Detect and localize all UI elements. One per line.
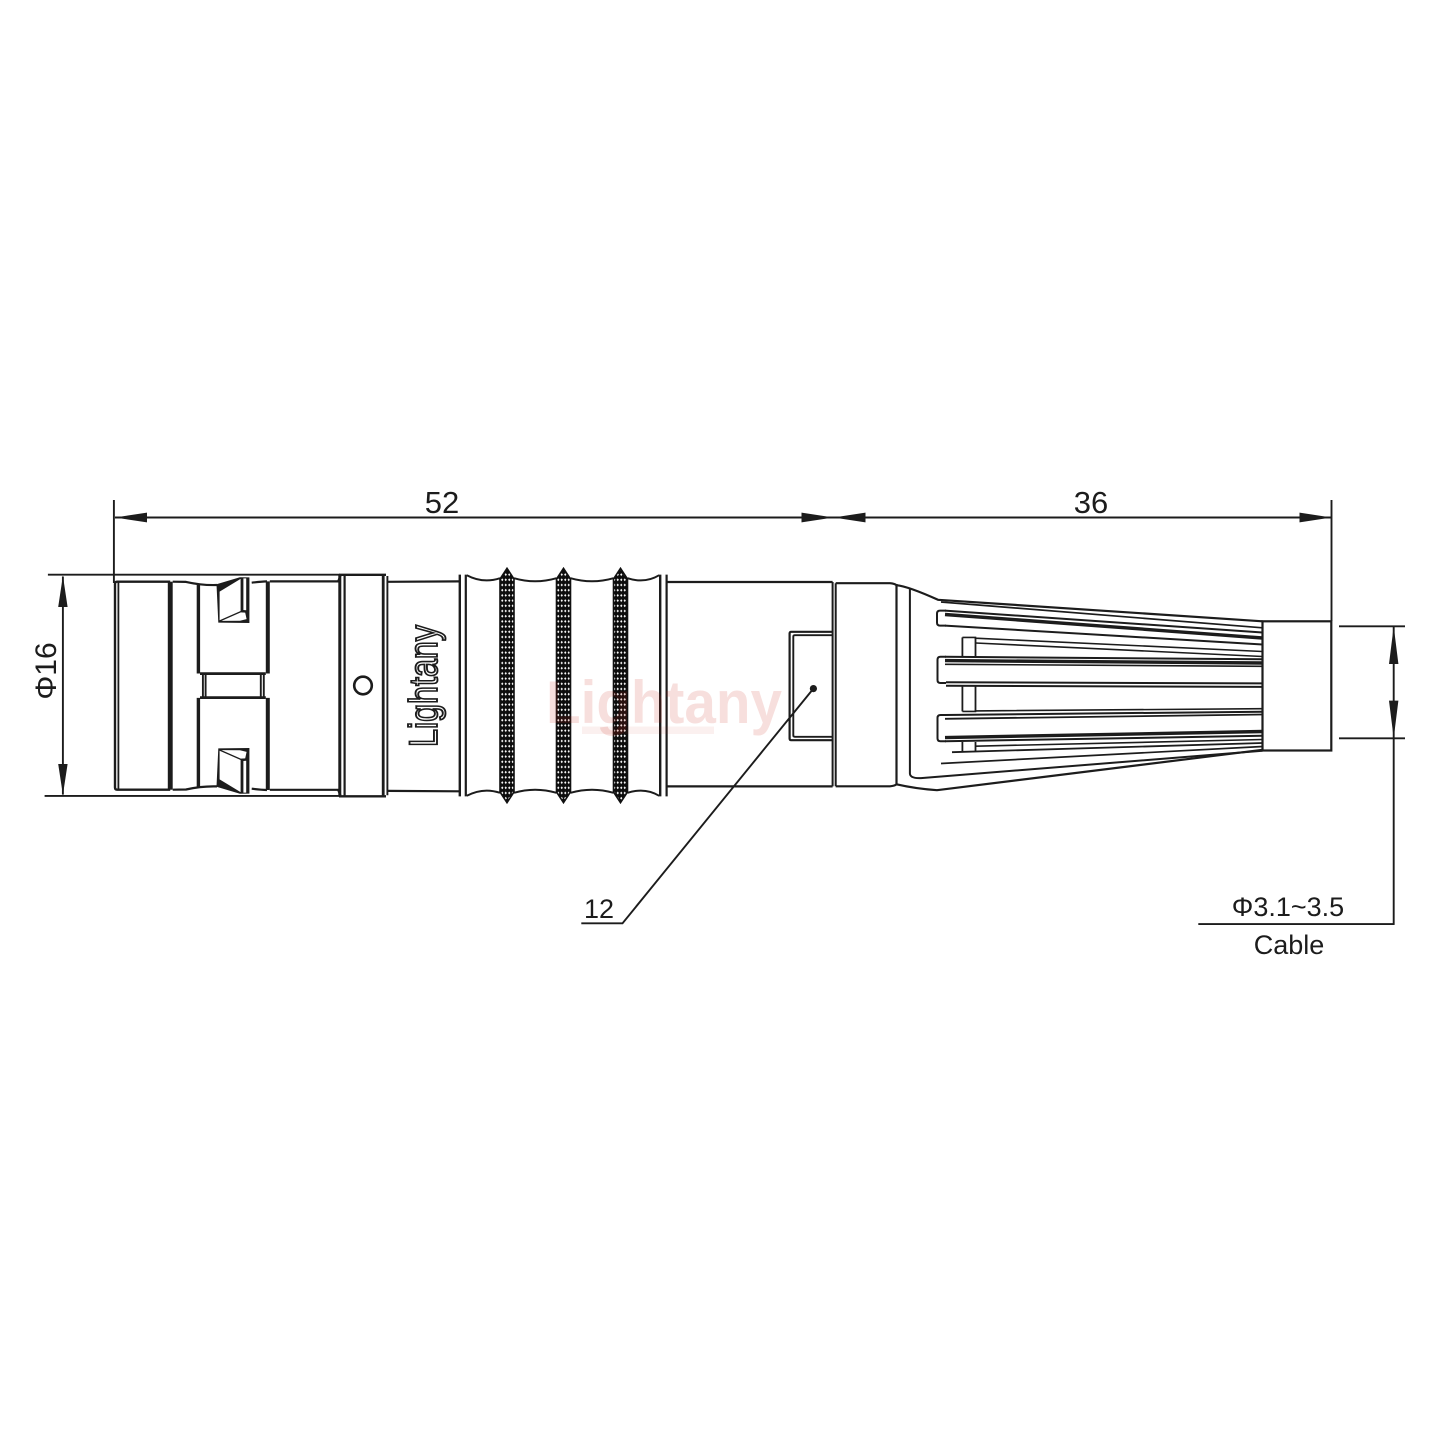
- svg-text:Φ16: Φ16: [30, 642, 63, 699]
- svg-text:Cable: Cable: [1254, 930, 1325, 960]
- svg-text:Φ3.1~3.5: Φ3.1~3.5: [1232, 892, 1344, 922]
- svg-text:36: 36: [1074, 485, 1108, 520]
- svg-text:Lightany: Lightany: [402, 625, 446, 747]
- svg-text:52: 52: [425, 485, 459, 520]
- svg-text:Lightany: Lightany: [546, 669, 783, 736]
- svg-text:12: 12: [584, 894, 614, 924]
